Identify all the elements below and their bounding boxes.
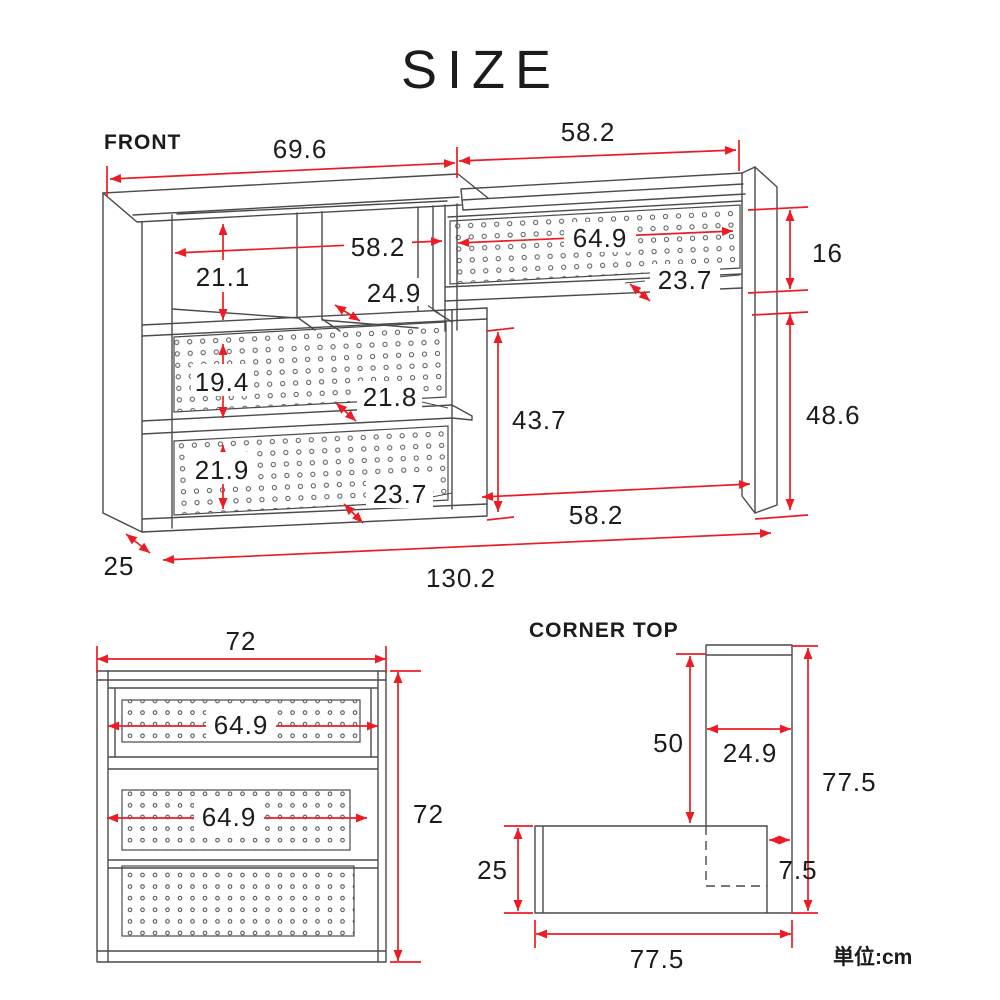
front-view-label: FRONT (104, 131, 181, 154)
dim-side-peg-mid-width: 64.9 (202, 802, 257, 832)
corner-top-view-drawing: CORNER TOP 50 24.9 77.5 25 7.5 77.5 (477, 619, 877, 974)
dim-front-peg1-height: 19.4 (195, 367, 250, 397)
size-diagram-canvas: SIZE FRONT 69.6 58.2 (0, 0, 1000, 1000)
dim-corner-overlap: 7.5 (778, 855, 817, 885)
dim-front-top-right-width: 58.2 (561, 117, 616, 147)
dim-side-peg-top-width: 64.9 (214, 710, 269, 740)
dim-side-width: 72 (226, 626, 257, 656)
dim-front-right-shelf-depth: 23.7 (658, 265, 713, 295)
dim-front-side-depth: 25 (104, 551, 135, 581)
size-diagram: SIZE FRONT 69.6 58.2 (0, 0, 1000, 1000)
dim-side-height: 72 (413, 799, 444, 829)
dim-front-right-peg-width: 64.9 (573, 223, 628, 253)
dim-corner-bottom-width: 77.5 (630, 944, 685, 974)
dim-front-total-width: 130.2 (426, 563, 496, 593)
side-view-drawing: 72 64.9 64.9 72 (97, 626, 444, 962)
front-view-drawing: FRONT 69.6 58.2 58.2 (103, 117, 861, 593)
dim-front-knee-height: 43.7 (512, 405, 567, 435)
side-pegboard-bottom (122, 866, 354, 936)
dim-front-mid-shelf-depth: 21.8 (363, 382, 418, 412)
dim-corner-right-depth: 77.5 (822, 767, 877, 797)
dim-front-top-left-width: 69.6 (273, 134, 328, 164)
dim-front-inner-width: 58.2 (351, 232, 406, 262)
dim-front-mid-depth: 24.9 (367, 278, 422, 308)
dim-front-cubby-height: 21.1 (196, 262, 251, 292)
dim-front-lower-depth: 23.7 (373, 479, 428, 509)
dim-corner-panel-width: 24.9 (723, 738, 778, 768)
dim-front-leg-height: 48.6 (806, 400, 861, 430)
unit-note: 単位:cm (833, 945, 912, 969)
dim-corner-clearance: 50 (653, 728, 684, 758)
dim-front-knee-width: 58.2 (569, 500, 624, 530)
desk-leg (742, 167, 777, 513)
dim-front-peg2-height: 21.9 (195, 455, 250, 485)
page-title: SIZE (401, 40, 561, 100)
dim-front-right-gap-height: 16 (812, 238, 843, 268)
dim-corner-left-depth: 25 (477, 855, 508, 885)
corner-top-view-label: CORNER TOP (529, 619, 679, 642)
